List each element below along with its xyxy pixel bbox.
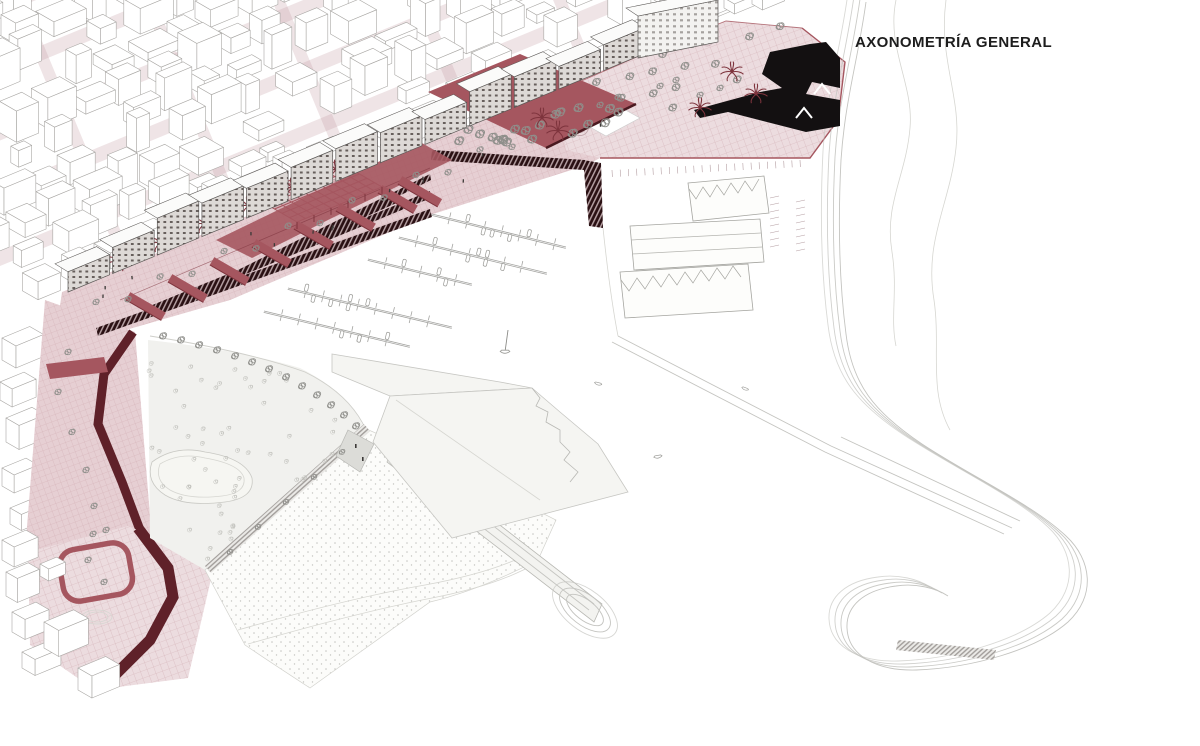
hook-deck [896,640,996,660]
drawing-sheet: AXONOMETRÍA GENERAL [0,0,1200,746]
sailboat [500,330,510,353]
axonometric-scene: AXONOMETRÍA GENERAL [0,0,1200,746]
dinghy [654,455,663,459]
basin-edge [603,228,618,336]
coast-contour-1 [890,0,910,346]
warehouse-2 [630,219,764,270]
quay-edge [612,336,1020,534]
dinghy [741,387,749,392]
warehouse-3 [620,264,753,318]
dinghy [594,382,602,386]
steps-band-drop [583,160,603,228]
breakwater-structure [821,0,1087,670]
coast-contour-2 [932,0,957,430]
warehouse-1 [688,176,769,221]
drawing-title: AXONOMETRÍA GENERAL [855,34,1052,51]
